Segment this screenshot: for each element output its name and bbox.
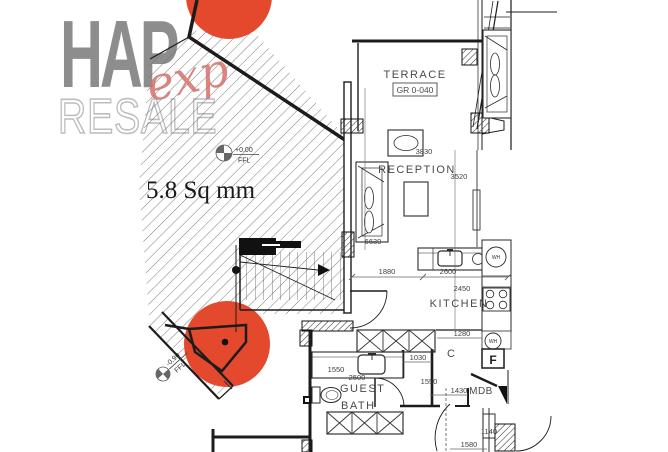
fridge-label: F — [489, 353, 496, 367]
dim-1550-corridor: 1550 — [421, 377, 438, 386]
dim-3520: 3520 — [451, 172, 468, 181]
wardrobe-icons — [327, 330, 435, 434]
dim-1880: 1880 — [379, 267, 396, 276]
mdb-label: MDB — [469, 386, 493, 397]
dim-2600: 2600 — [440, 267, 457, 276]
bottom-right-door-arc — [516, 416, 551, 451]
guest-bath-label-2: BATH — [341, 400, 376, 412]
dim-1430: 1430 — [451, 386, 468, 395]
floorplan-image: HAP RESALE — [0, 0, 668, 452]
door-c-label: C — [447, 348, 455, 360]
dim-1280: 1280 — [454, 329, 471, 338]
dim-1580: 1580 — [461, 440, 478, 449]
coffee-table-icon — [404, 182, 428, 216]
dim-1030: 1030 — [410, 353, 427, 362]
guest-bath-label-1: GUEST — [340, 383, 385, 395]
water-heater-top-label: WH — [492, 255, 501, 261]
bottom-door-arc — [435, 404, 450, 451]
kitchen-label: KITCHEN — [430, 298, 489, 310]
dim-1550-bath: 1550 — [328, 365, 345, 374]
terrace-tag: GR 0-040 — [397, 85, 434, 95]
mdb-triangle-icon — [498, 386, 507, 404]
terrace-label: TERRACE — [383, 69, 446, 81]
dim-6630: 6630 — [365, 237, 382, 246]
dim-1140: 1140 — [481, 427, 497, 436]
dim-2450: 2450 — [454, 284, 471, 293]
reception-furniture — [356, 30, 511, 242]
level-upper-datum: FFL — [238, 158, 251, 165]
reception-label: RECEPTION — [378, 164, 456, 176]
kitchen-door-arc — [350, 291, 387, 328]
water-heater-bottom-label: WH — [489, 339, 498, 345]
bath-sink-icon — [358, 355, 385, 374]
floorplan-drawing: +0.00 FFL -0.90 FFL TERRACE GR 0-040 REC… — [0, 0, 668, 452]
area-label: 5.8 Sq mm — [146, 177, 256, 204]
dim-3830: 3830 — [416, 147, 433, 156]
toilet-icon — [312, 387, 341, 403]
level-upper-value: +0.00 — [235, 147, 253, 154]
dim-2500: 2500 — [349, 373, 366, 382]
